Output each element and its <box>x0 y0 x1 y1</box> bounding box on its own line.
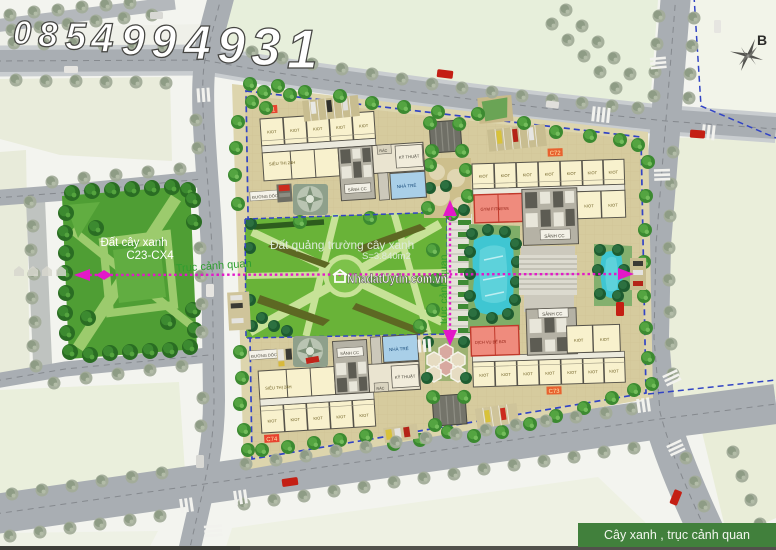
svg-text:KIOT: KIOT <box>574 337 584 342</box>
svg-text:9: 9 <box>217 17 245 74</box>
svg-text:NhadatUytin.com.vn: NhadatUytin.com.vn <box>347 272 447 286</box>
svg-text:C74: C74 <box>266 437 278 444</box>
svg-text:Cây xanh , trục cảnh quan: Cây xanh , trục cảnh quan <box>604 528 750 542</box>
svg-text:C23-CX4: C23-CX4 <box>126 250 174 262</box>
svg-text:KIOT: KIOT <box>523 371 533 376</box>
svg-text:KIOT: KIOT <box>479 173 489 178</box>
svg-text:KIOT: KIOT <box>567 171 577 176</box>
svg-text:KIOT: KIOT <box>545 171 555 176</box>
svg-text:GYM FITNESS: GYM FITNESS <box>480 206 509 212</box>
svg-text:B: B <box>757 32 767 48</box>
svg-text:1: 1 <box>287 18 318 80</box>
svg-text:NHÀ TRẺ: NHÀ TRẺ <box>389 345 409 352</box>
svg-text:5: 5 <box>65 16 87 58</box>
svg-text:KIOT: KIOT <box>290 417 300 423</box>
svg-text:KIOT: KIOT <box>523 172 533 177</box>
svg-text:0: 0 <box>13 14 32 51</box>
svg-text:KIOT: KIOT <box>501 372 511 377</box>
svg-text:C72: C72 <box>550 151 562 157</box>
svg-text:C73: C73 <box>549 389 561 395</box>
svg-text:KIOT: KIOT <box>313 415 323 421</box>
svg-text:trục cảnh quan: trục cảnh quan <box>438 254 450 324</box>
svg-text:KIOT: KIOT <box>609 368 619 373</box>
svg-text:KIOT: KIOT <box>609 169 619 174</box>
svg-text:KIOT: KIOT <box>359 412 369 418</box>
svg-text:9: 9 <box>121 17 145 65</box>
svg-text:9: 9 <box>151 16 177 67</box>
svg-text:KIOT: KIOT <box>545 370 555 375</box>
svg-text:KIOT: KIOT <box>588 170 598 175</box>
svg-text:KIOT: KIOT <box>608 202 618 207</box>
svg-text:4: 4 <box>90 15 114 61</box>
svg-text:KIOT: KIOT <box>588 369 598 374</box>
svg-text:SẢNH CC: SẢNH CC <box>542 310 563 317</box>
svg-text:SẢNH CC: SẢNH CC <box>544 232 565 239</box>
svg-text:KIOT: KIOT <box>336 124 346 130</box>
svg-text:S=3.840m2: S=3.840m2 <box>362 251 411 262</box>
svg-text:Đất quảng trường cây xanh: Đất quảng trường cây xanh <box>270 238 414 252</box>
svg-text:RÁC: RÁC <box>379 149 388 154</box>
svg-text:KIOT: KIOT <box>336 414 346 420</box>
svg-text:KIOT: KIOT <box>584 203 594 208</box>
svg-text:4: 4 <box>183 18 211 71</box>
svg-text:KIOT: KIOT <box>567 370 577 375</box>
svg-text:8: 8 <box>38 15 58 55</box>
svg-text:Đất cây xanh: Đất cây xanh <box>100 237 167 249</box>
svg-text:KIOT: KIOT <box>479 372 489 377</box>
svg-text:KIOT: KIOT <box>267 418 277 424</box>
svg-text:KIOT: KIOT <box>501 173 511 178</box>
svg-text:KIOT: KIOT <box>267 129 277 135</box>
svg-text:KIOT: KIOT <box>359 123 369 129</box>
svg-text:RÁC: RÁC <box>376 386 385 390</box>
svg-text:KIOT: KIOT <box>600 337 610 342</box>
svg-text:3: 3 <box>251 18 280 77</box>
svg-text:KIOT: KIOT <box>290 127 300 133</box>
svg-text:DỊCH VỤ BỂ BƠI: DỊCH VỤ BỂ BƠI <box>475 339 506 345</box>
svg-text:KIOT: KIOT <box>313 126 323 132</box>
